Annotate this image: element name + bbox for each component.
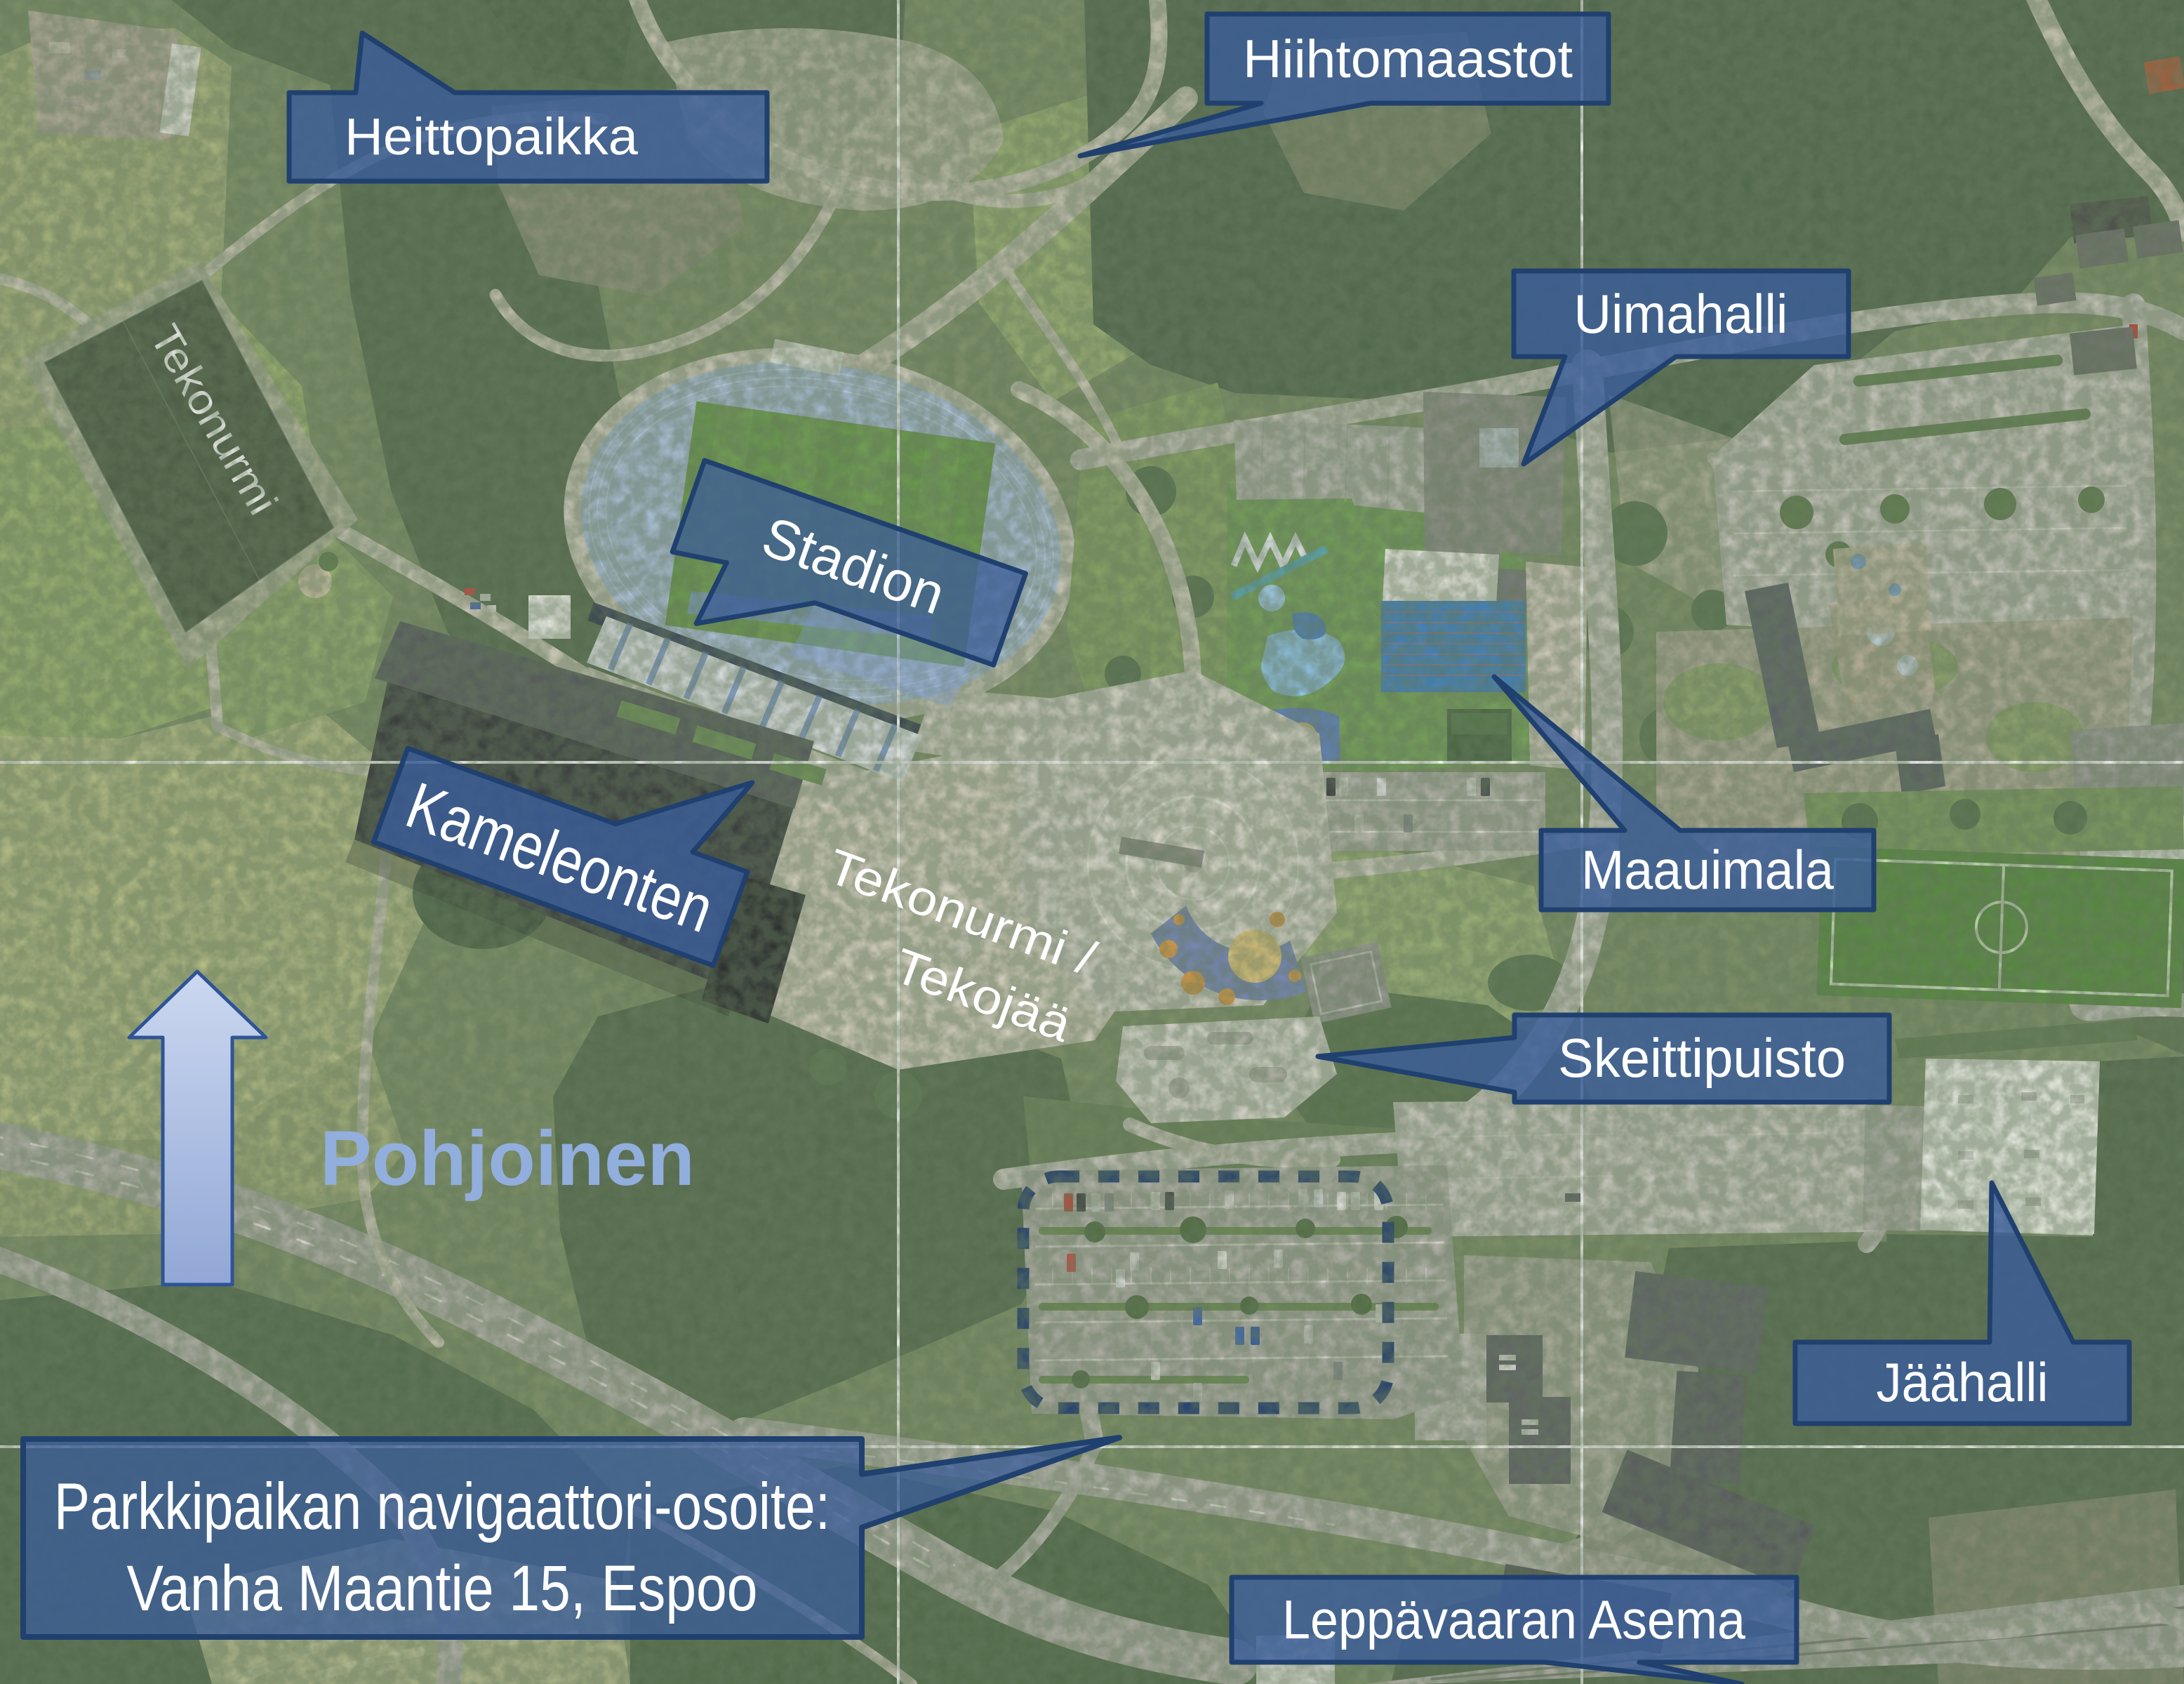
svg-text:Heittopaikka: Heittopaikka bbox=[345, 107, 639, 166]
svg-text:Maauimala: Maauimala bbox=[1581, 839, 1835, 901]
svg-text:Vanha Maantie 15, Espoo: Vanha Maantie 15, Espoo bbox=[127, 1553, 758, 1624]
svg-text:Pohjoinen: Pohjoinen bbox=[320, 1115, 695, 1202]
svg-text:Leppävaaran Asema: Leppävaaran Asema bbox=[1282, 1589, 1746, 1650]
svg-text:Hiihtomaastot: Hiihtomaastot bbox=[1243, 29, 1573, 89]
svg-text:Parkkipaikan navigaattori-osoi: Parkkipaikan navigaattori-osoite: bbox=[54, 1469, 830, 1543]
svg-text:Uimahalli: Uimahalli bbox=[1574, 283, 1788, 345]
svg-text:Jäähalli: Jäähalli bbox=[1877, 1351, 2049, 1413]
svg-text:Skeittipuisto: Skeittipuisto bbox=[1558, 1027, 1846, 1089]
